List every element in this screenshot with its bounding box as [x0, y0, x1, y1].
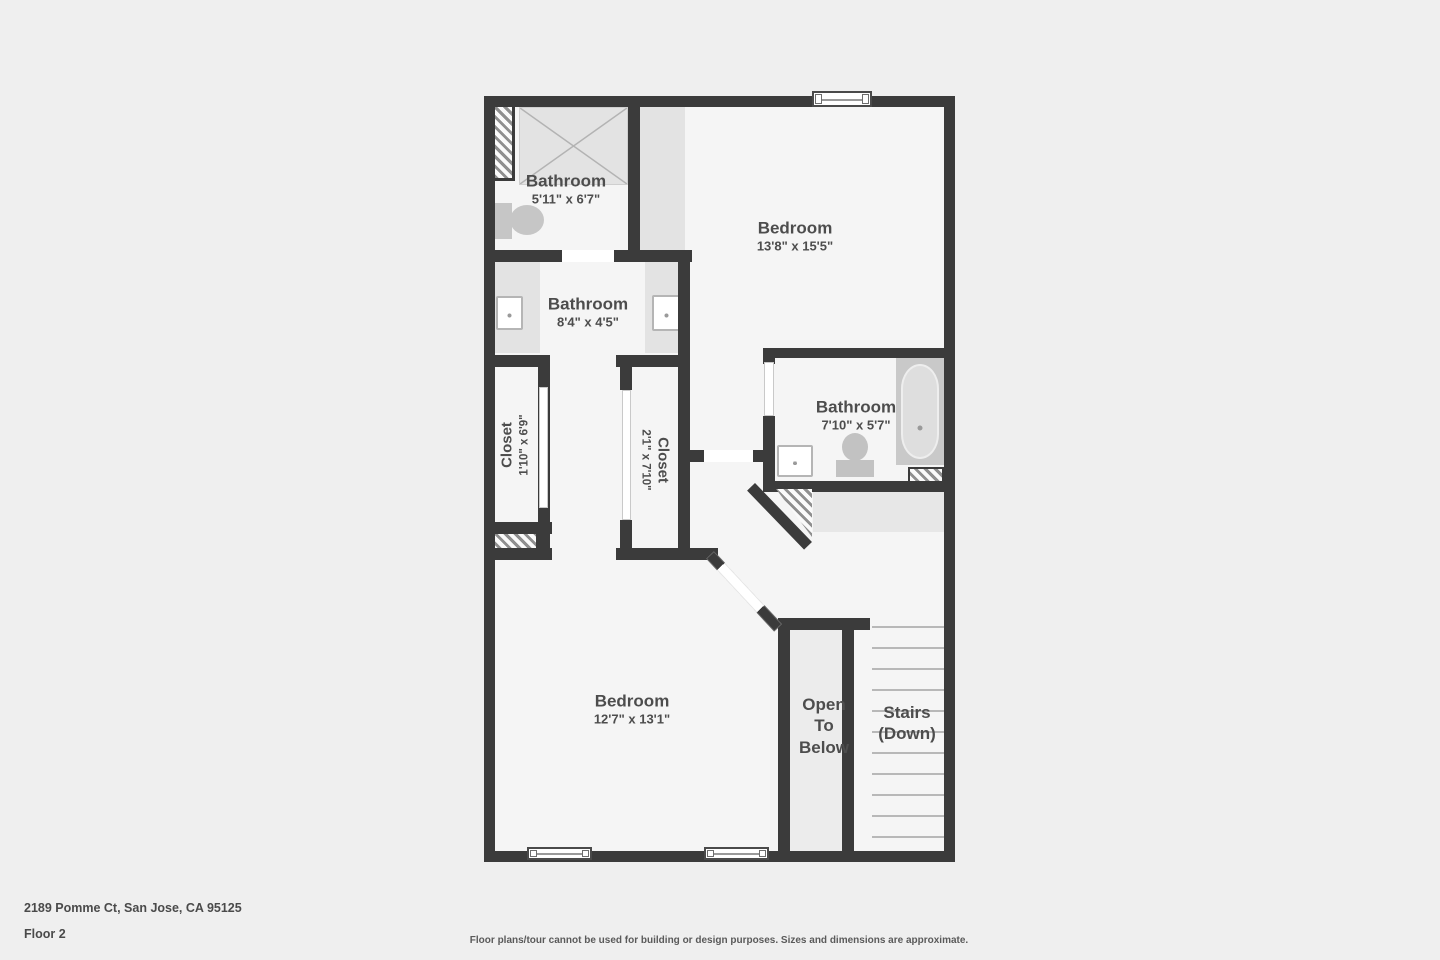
wall [753, 450, 763, 462]
toilet2-base-icon [836, 460, 874, 477]
wall-outer-right [944, 96, 955, 862]
diagonal-door-wall [706, 551, 782, 632]
window-cap [815, 94, 822, 104]
room-name: Bathroom [526, 170, 606, 191]
wall [620, 520, 632, 548]
closet-slider-door [622, 390, 631, 520]
door-opening-bath [562, 250, 614, 262]
room-dims: 2'1" x 7'10" [638, 429, 652, 490]
window-cap [582, 850, 589, 857]
room-label-bathroom-3: Bathroom 7'10" x 5'7" [816, 396, 896, 434]
bathtub-basin [901, 364, 939, 459]
room-label-stairs: Stairs (Down) [878, 702, 936, 745]
stair-tread [872, 626, 944, 628]
toilet-tank-icon [492, 203, 512, 239]
window-cap [862, 94, 869, 104]
room-name: To [799, 715, 849, 736]
room-dims: 7'10" x 5'7" [816, 418, 896, 434]
room-name: Closet [498, 414, 517, 475]
room-name: Bathroom [548, 293, 628, 314]
stair-tread [872, 815, 944, 817]
wall [678, 450, 704, 462]
room-name: Closet [653, 429, 672, 490]
footer-address: 2189 Pomme Ct, San Jose, CA 95125 [24, 901, 242, 915]
bedroom-door-opening [704, 450, 753, 462]
sink-icon-left [496, 296, 523, 330]
window [812, 91, 872, 107]
floor-plan-page: Bathroom 5'11" x 6'7" Bathroom 8'4" x 4'… [0, 0, 1440, 960]
sink-icon-ensuite [777, 445, 813, 477]
room-label-open-to-below: Open To Below [799, 694, 849, 758]
window-cap [759, 850, 766, 857]
wall [616, 548, 718, 560]
wall-outer-top [484, 96, 955, 107]
stair-tread [872, 794, 944, 796]
stair-tread [872, 752, 944, 754]
stair-tread [872, 668, 944, 670]
window-cap [707, 850, 714, 857]
stair-tread [872, 647, 944, 649]
bedroom-closet-nook [640, 107, 685, 252]
room-label-bedroom-2: Bedroom 12'7" x 13'1" [594, 690, 670, 728]
hatched-wall-closet [490, 532, 538, 550]
room-label-bathroom-1: Bathroom 5'11" x 6'7" [526, 170, 606, 208]
room-name: (Down) [878, 723, 936, 744]
toilet2-bowl-icon [842, 433, 868, 461]
footer-floor-label: Floor 2 [24, 927, 66, 941]
wall [484, 250, 562, 262]
floor-plan: Bathroom 5'11" x 6'7" Bathroom 8'4" x 4'… [484, 96, 955, 862]
stair-tread [872, 836, 944, 838]
wall [678, 252, 690, 560]
room-dims: 1'10" x 6'9" [517, 414, 531, 475]
window-pane-line [712, 853, 761, 855]
wall-outer-left [484, 96, 495, 862]
room-name: Below [799, 737, 849, 758]
hatched-wall-tub [908, 467, 944, 483]
window [527, 847, 592, 860]
stair-landing-band [813, 488, 944, 532]
room-dims: 8'4" x 4'5" [548, 315, 628, 331]
room-label-closet-2: Closet 2'1" x 7'10" [638, 429, 671, 490]
room-name: Stairs [878, 702, 936, 723]
wall [778, 618, 790, 851]
toilet-bowl-icon [510, 205, 544, 235]
closet-slider-door [539, 387, 548, 508]
room-name: Open [799, 694, 849, 715]
room-dims: 13'8" x 15'5" [757, 239, 833, 255]
room-label-bathroom-2: Bathroom 8'4" x 4'5" [548, 293, 628, 331]
room-name: Bathroom [816, 396, 896, 417]
room-name: Bedroom [594, 690, 670, 711]
sink-icon-right [652, 295, 681, 331]
bathroom-door [764, 362, 774, 416]
wall [616, 355, 690, 367]
footer-disclaimer: Floor plans/tour cannot be used for buil… [470, 935, 968, 946]
wall [620, 367, 632, 390]
room-dims: 12'7" x 13'1" [594, 712, 670, 728]
room-label-closet-1: Closet 1'10" x 6'9" [498, 414, 531, 475]
window-pane-line [535, 853, 584, 855]
window-pane-line [820, 99, 865, 101]
bathtub-drain [918, 425, 923, 430]
stair-tread [872, 689, 944, 691]
wall [763, 348, 955, 358]
window-cap [530, 850, 537, 857]
window [704, 847, 769, 860]
room-label-bedroom-1: Bedroom 13'8" x 15'5" [757, 217, 833, 255]
wall [778, 618, 870, 630]
stair-tread [872, 773, 944, 775]
room-name: Bedroom [757, 217, 833, 238]
room-dims: 5'11" x 6'7" [526, 192, 606, 208]
wall [628, 96, 640, 262]
bathtub-icon [896, 358, 944, 465]
